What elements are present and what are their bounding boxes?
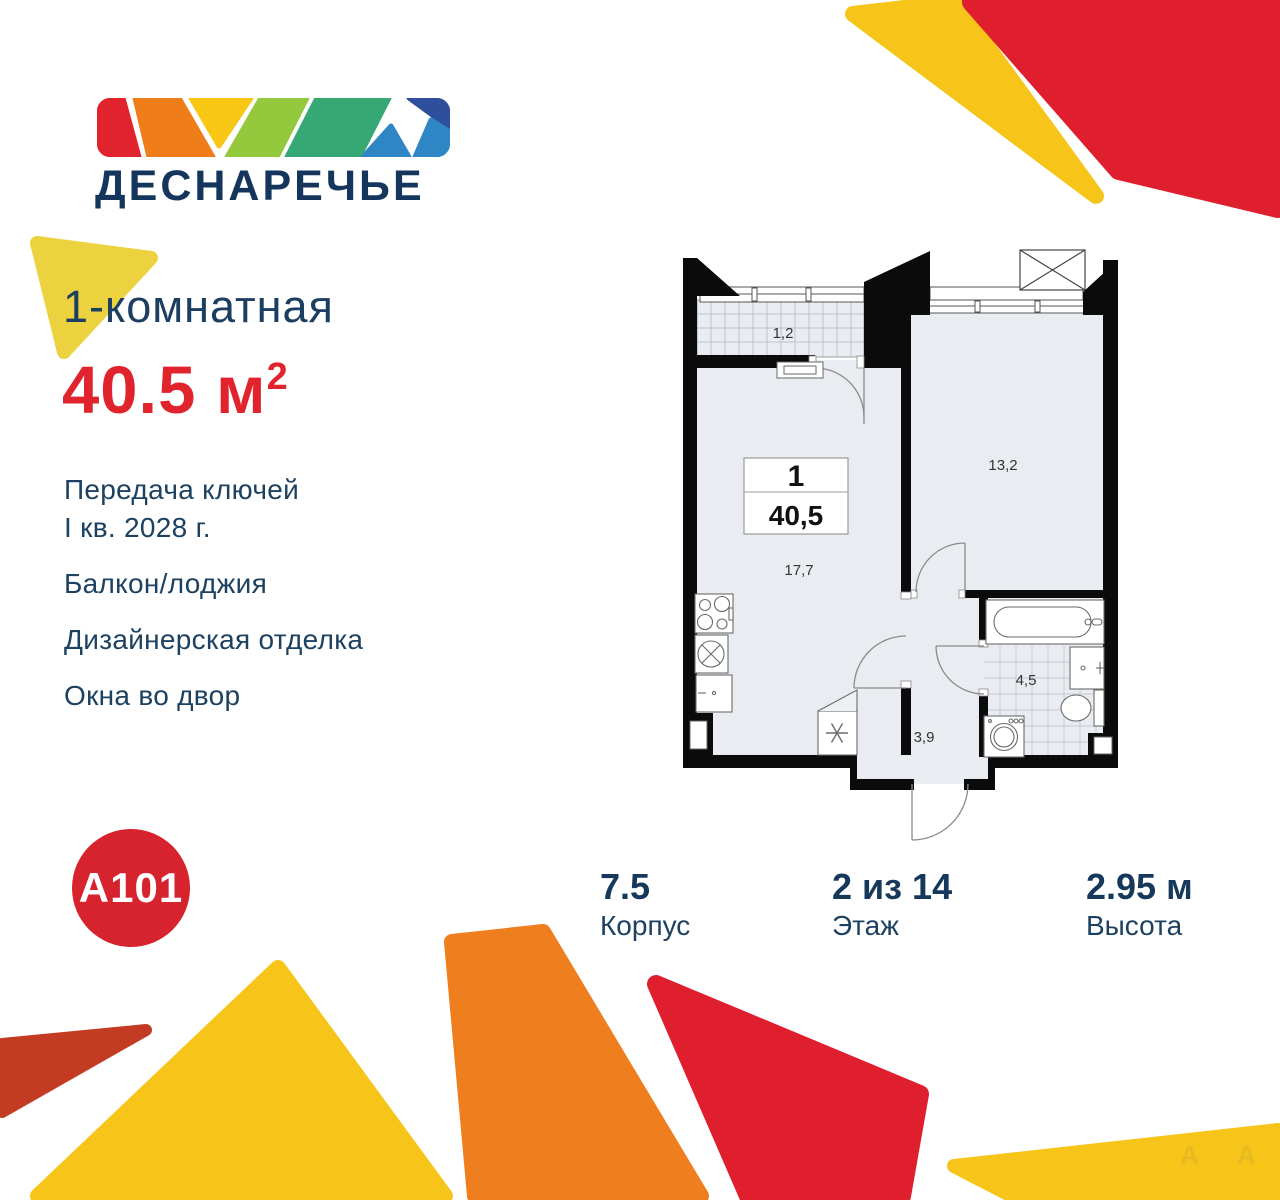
- project-logo-icon: [97, 98, 450, 157]
- bedroom-area-label: 13,2: [988, 457, 1017, 474]
- watermark-letter: A: [1237, 1140, 1256, 1171]
- unit-rooms-count: 1: [788, 460, 805, 493]
- room-floors: [693, 300, 1105, 784]
- toilet-tank: [1094, 690, 1104, 726]
- entrance-door-arc: [912, 784, 968, 840]
- logo-shape-red: [97, 98, 139, 157]
- stat-floor-value: 2 из 14: [832, 868, 952, 906]
- decor-bottom-yellow-triangle: [38, 968, 445, 1196]
- floor-plan: 1 40,5 1,2 13,2 17,7 4,5 3,9: [672, 240, 1138, 852]
- apartment-type-title: 1-комнатная: [63, 281, 334, 333]
- toilet-bowl: [1061, 695, 1091, 721]
- developer-logo: A101: [72, 829, 190, 947]
- area-superscript: 2: [267, 356, 289, 398]
- crossed-box-icon: [1020, 250, 1085, 290]
- stat-height: 2.95 м Высота: [1086, 868, 1193, 942]
- stat-height-label: Высота: [1086, 910, 1193, 942]
- apartment-area: 40.5 м2: [62, 352, 289, 429]
- stat-height-value: 2.95 м: [1086, 868, 1193, 906]
- balcony-area-label: 1,2: [773, 325, 794, 342]
- stat-floor: 2 из 14 Этаж: [832, 868, 952, 942]
- stat-building: 7.5 Корпус: [600, 868, 690, 942]
- kitchen-living-area-label: 17,7: [784, 562, 813, 579]
- area-value: 40.5: [62, 353, 196, 428]
- developer-logo-text: A101: [79, 864, 183, 912]
- decor-bottom-right-yellow-wedge: [954, 1130, 1278, 1196]
- stat-building-label: Корпус: [600, 910, 690, 942]
- feature-balcony: Балкон/лоджия: [64, 565, 363, 603]
- feature-windows: Окна во двор: [64, 677, 363, 715]
- feature-handover-line2: I кв. 2028 г.: [64, 509, 363, 547]
- kitchen-fixtures: [695, 594, 733, 712]
- stat-building-value: 7.5: [600, 868, 690, 906]
- feature-finishing: Дизайнерская отделка: [64, 621, 363, 659]
- watermark-letter: A: [1180, 1140, 1199, 1171]
- unit-badge: 1 40,5: [744, 458, 848, 534]
- hallway-area-label: 3,9: [914, 729, 935, 746]
- stat-floor-label: Этаж: [832, 910, 952, 942]
- feature-handover-line1: Передача ключей: [64, 471, 363, 509]
- feature-list: Передача ключей I кв. 2028 г. Балкон/лод…: [64, 471, 363, 715]
- decor-bottom-darkred-sliver: [2, 1030, 146, 1112]
- unit-area: 40,5: [769, 500, 824, 531]
- decor-bottom-red-triangle: [656, 984, 920, 1196]
- decor-bottom-orange-trapezoid: [452, 932, 701, 1196]
- bathroom-area-label: 4,5: [1016, 672, 1037, 689]
- area-unit: м: [216, 353, 267, 428]
- flyer-card: ДЕСНАРЕЧЬЕ 1-комнатная 40.5 м2 Передача …: [0, 0, 1280, 1200]
- balcony-door-sill: [777, 362, 823, 378]
- project-name: ДЕСНАРЕЧЬЕ: [95, 162, 425, 211]
